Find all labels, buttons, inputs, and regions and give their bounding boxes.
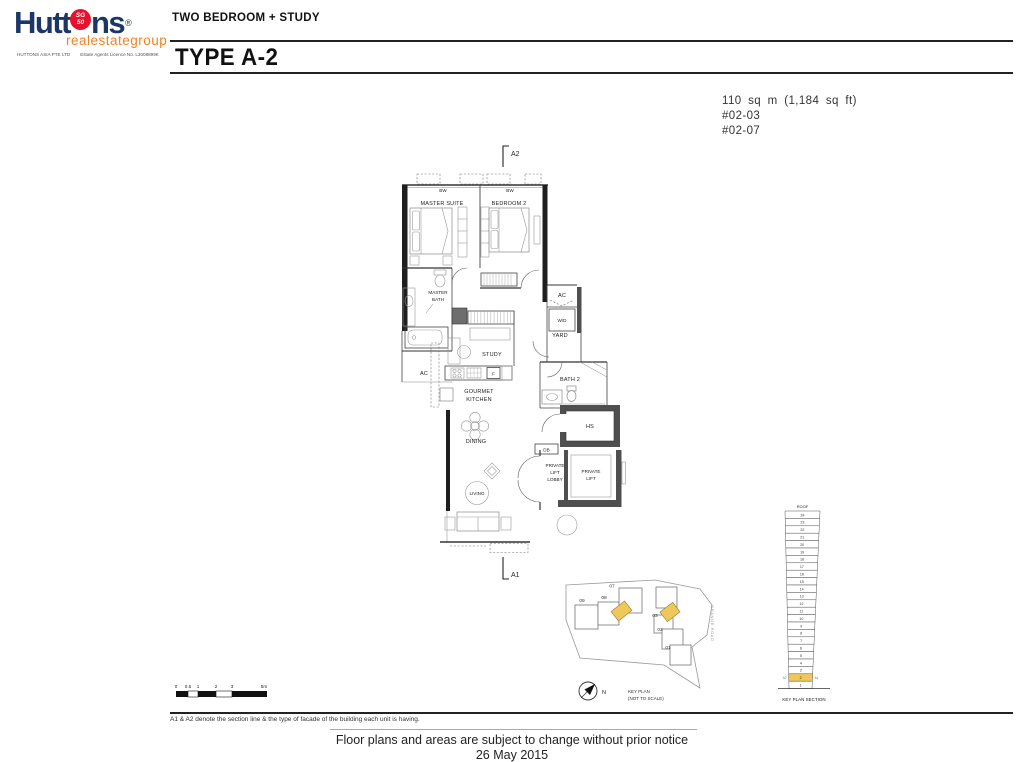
study-label: STUDY: [482, 352, 502, 358]
tower-floor-number: 2: [800, 676, 802, 680]
bedroom2-wardrobe: [481, 207, 489, 257]
facade-note: A1 & A2 denote the section line & the ty…: [170, 716, 420, 723]
sg50-badge: SG 50: [70, 9, 91, 30]
study-shelf: [468, 311, 514, 340]
tower-marker-a1: A1: [815, 676, 819, 680]
tower-floor-number: 6: [800, 647, 802, 651]
tower-floor-number: 7: [800, 639, 802, 643]
lift-lobby-label-2: LIFT: [550, 470, 560, 475]
header-rule-top: [170, 40, 1013, 42]
tower-marker-a2: A2: [783, 676, 787, 680]
unit-number-1: #02-03: [722, 109, 857, 124]
unit-info: 110 sq m (1,184 sq ft) #02-03 #02-07: [722, 94, 857, 139]
north-label: N: [602, 690, 606, 696]
unit-number-2: #02-07: [722, 124, 857, 139]
scale-05: 0.5: [185, 684, 192, 689]
scale-bar: 0 0.5 1 2 3 5m: [163, 678, 293, 704]
tower-floor-number: 22: [800, 528, 804, 532]
bedroom2-label: BEDROOM 2: [492, 201, 527, 207]
master-bath-fixtures: [403, 270, 448, 348]
key-plan: 09 08 07 03 02 01 GRANGE ROAD N KEY PLAN…: [552, 575, 752, 720]
unit-type-title: TWO BEDROOM + STUDY: [172, 12, 320, 24]
key-plan-section: ROOF 24232221201918171615141312111098765…: [770, 498, 840, 708]
ac-wd-yard: [549, 300, 575, 331]
bw-label-bedroom2: BW: [506, 188, 514, 193]
tower-floor-number: 8: [800, 632, 802, 636]
tower-floor-number: 15: [800, 580, 804, 584]
tower-floor-number: 12: [800, 602, 804, 606]
dining-label: DINING: [466, 439, 486, 445]
company-name: HUTTONS ASIA PTE LTD: [17, 52, 70, 57]
lift-lobby-label-3: LOBBY: [547, 477, 562, 482]
tower-floor-number: 5: [800, 654, 802, 658]
stack-07: 07: [609, 584, 615, 590]
master-bath-label-1: MASTER: [428, 290, 448, 295]
registered-mark: ®: [125, 18, 132, 28]
tower-floor-number: 20: [800, 543, 804, 547]
bath2-fixtures: [542, 362, 607, 404]
key-plan-section-caption: KEY PLAN SECTION: [782, 697, 825, 702]
unit-area: 110 sq m (1,184 sq ft): [722, 94, 857, 109]
header-rule-bottom: [170, 72, 1013, 74]
scale-bar-segments: [176, 691, 267, 697]
tower-floor-number: 1: [800, 684, 802, 688]
tower-floor-number: 21: [800, 536, 804, 540]
living-label: LIVING: [469, 491, 484, 496]
bay-windows: [417, 174, 541, 184]
yard-label: YARD: [552, 333, 568, 339]
section-marker-top-label: A2: [511, 151, 520, 158]
bw-label-master: BW: [439, 188, 447, 193]
stack-08: 08: [601, 595, 607, 601]
floor-plan: A2 A1: [390, 140, 650, 595]
tower-floors: 24232221201918171615141312111098765432A2…: [783, 511, 820, 689]
wd-label: W/D: [558, 318, 568, 323]
service-shaft: [452, 308, 467, 324]
key-plan-subtitle: (NOT TO SCALE): [628, 696, 664, 701]
footer-rule: [170, 712, 1013, 714]
huttons-logo: Hutt SG 50 ns ® realestategroup HUTTONS …: [14, 8, 194, 57]
bedroom2-bed: [489, 208, 540, 252]
column: [557, 515, 577, 535]
brand-text-left: Hutt: [14, 8, 70, 38]
stack-01: 01: [665, 645, 671, 651]
roof-label: ROOF: [797, 504, 809, 509]
badge-line2: 50: [77, 20, 84, 27]
tower-floor-number: 16: [800, 573, 804, 577]
disclaimer-rule: [330, 729, 697, 730]
tower-floor-number: 14: [800, 587, 804, 591]
stack-02: 02: [657, 627, 663, 633]
kitchen-counter: [440, 366, 512, 401]
ac-right-label: AC: [558, 293, 566, 299]
tower-floor-number: 23: [800, 521, 804, 525]
master-suite-bed: [410, 208, 452, 265]
ledge-strip: [431, 343, 439, 407]
private-lift-label-1: PRIVATE: [582, 469, 601, 474]
hs-label: HS: [586, 424, 594, 430]
section-marker-bottom-label: A1: [511, 572, 520, 579]
key-plan-buildings: [575, 587, 691, 665]
scale-bar-labels: 0 0.5 1 2 3 5m: [175, 684, 268, 689]
tower-floor-number: 3: [800, 669, 802, 673]
private-lift-label-2: LIFT: [586, 476, 596, 481]
date-text: 26 May 2015: [0, 748, 1024, 762]
tower-floor-number: 19: [800, 550, 804, 554]
scale-2: 2: [215, 684, 218, 689]
kitchen-label-2: KITCHEN: [466, 397, 492, 403]
tower-floor-number: 9: [800, 624, 802, 628]
master-suite-wardrobe: [458, 207, 467, 257]
north-compass-icon: [579, 682, 597, 700]
dining-table: [461, 412, 488, 439]
tower-floor-number: 17: [800, 565, 804, 569]
kitchen-label-1: GOURMET: [464, 389, 494, 395]
master-bath-label-2: BATH: [432, 297, 444, 302]
scale-0: 0: [175, 684, 178, 689]
bedroom2-shelf: [481, 273, 517, 286]
section-marker-top: A2: [503, 146, 520, 167]
tower-floor-number: 18: [800, 558, 804, 562]
section-marker-bottom: A1: [503, 557, 520, 579]
master-suite-label: MASTER SUITE: [420, 201, 463, 207]
disclaimer-text: Floor plans and areas are subject to cha…: [0, 733, 1024, 747]
scale-5m: 5m: [261, 684, 268, 689]
tower-floor-number: 10: [799, 617, 803, 621]
company-line: HUTTONS ASIA PTE LTD Estate Agents Licen…: [17, 52, 194, 57]
tower-floor-number: 4: [800, 661, 802, 665]
bath2-label: BATH 2: [560, 377, 580, 383]
balcony-edge: [450, 544, 528, 553]
grange-road-label: GRANGE ROAD: [710, 605, 715, 642]
tower-floor-number: 13: [800, 595, 804, 599]
scale-1: 1: [197, 684, 200, 689]
scale-3: 3: [231, 684, 234, 689]
tower-floor-number: 11: [800, 610, 804, 614]
tower-floor-number: 24: [801, 513, 805, 517]
ac-left-label: AC: [420, 371, 428, 377]
living-furniture: [445, 463, 511, 531]
key-plan-title: KEY PLAN: [628, 689, 650, 694]
plan-type-title: TYPE A-2: [175, 44, 278, 72]
lift-lobby-label-1: PRIVATE: [546, 463, 565, 468]
stack-03: 03: [652, 613, 658, 619]
fridge-label: F: [492, 372, 495, 377]
stack-09: 09: [579, 598, 585, 604]
db-label: DB: [543, 448, 549, 453]
licence-number: Estate Agents Licence No. L3008899K: [80, 52, 159, 57]
